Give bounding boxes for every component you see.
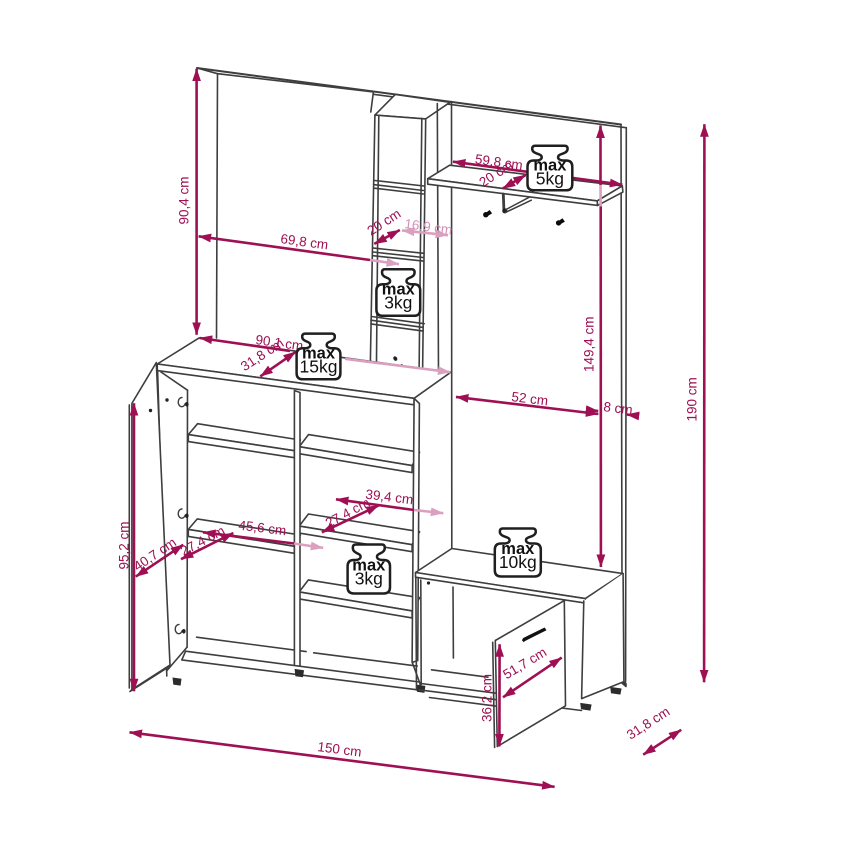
svg-text:5kg: 5kg bbox=[536, 169, 564, 189]
svg-text:149,4 cm: 149,4 cm bbox=[582, 316, 597, 372]
svg-text:90,4 cm: 90,4 cm bbox=[177, 176, 192, 224]
svg-text:15kg: 15kg bbox=[300, 356, 338, 376]
svg-text:10kg: 10kg bbox=[499, 552, 537, 572]
svg-text:190 cm: 190 cm bbox=[685, 377, 700, 421]
svg-text:3kg: 3kg bbox=[384, 293, 412, 313]
svg-text:95,2 cm: 95,2 cm bbox=[117, 521, 132, 569]
svg-text:36,2 cm: 36,2 cm bbox=[479, 674, 494, 722]
svg-text:3kg: 3kg bbox=[355, 569, 383, 589]
